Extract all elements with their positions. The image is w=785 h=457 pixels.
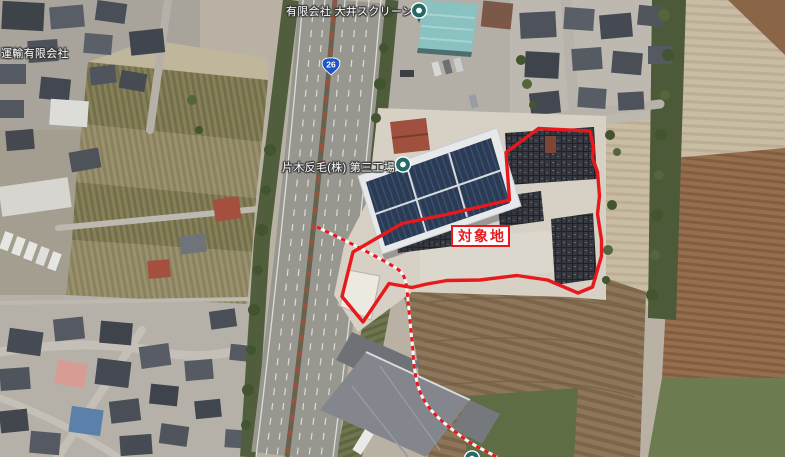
target-site-label: 対象地 bbox=[451, 225, 510, 247]
route-26-shield-icon: 26 bbox=[321, 57, 341, 76]
satellite-imagery bbox=[0, 0, 785, 457]
place-pin-icon[interactable] bbox=[461, 449, 483, 457]
material-stacks bbox=[505, 127, 597, 185]
place-label-oi-screen[interactable]: 有限会社 大井スクリーン bbox=[286, 6, 413, 19]
place-label-katagi-hanmo[interactable]: 片木反毛(株) 第三工場 bbox=[282, 162, 395, 175]
place-pin-icon[interactable] bbox=[408, 1, 430, 26]
satellite-map-canvas[interactable]: 有限会社 大井スクリーン 片木反毛(株) 第三工場 運輸有限会社 26 対象地 bbox=[0, 0, 785, 457]
place-pin-icon[interactable] bbox=[392, 155, 414, 180]
route-number: 26 bbox=[326, 60, 336, 70]
place-label-unyu[interactable]: 運輸有限会社 bbox=[1, 48, 69, 61]
